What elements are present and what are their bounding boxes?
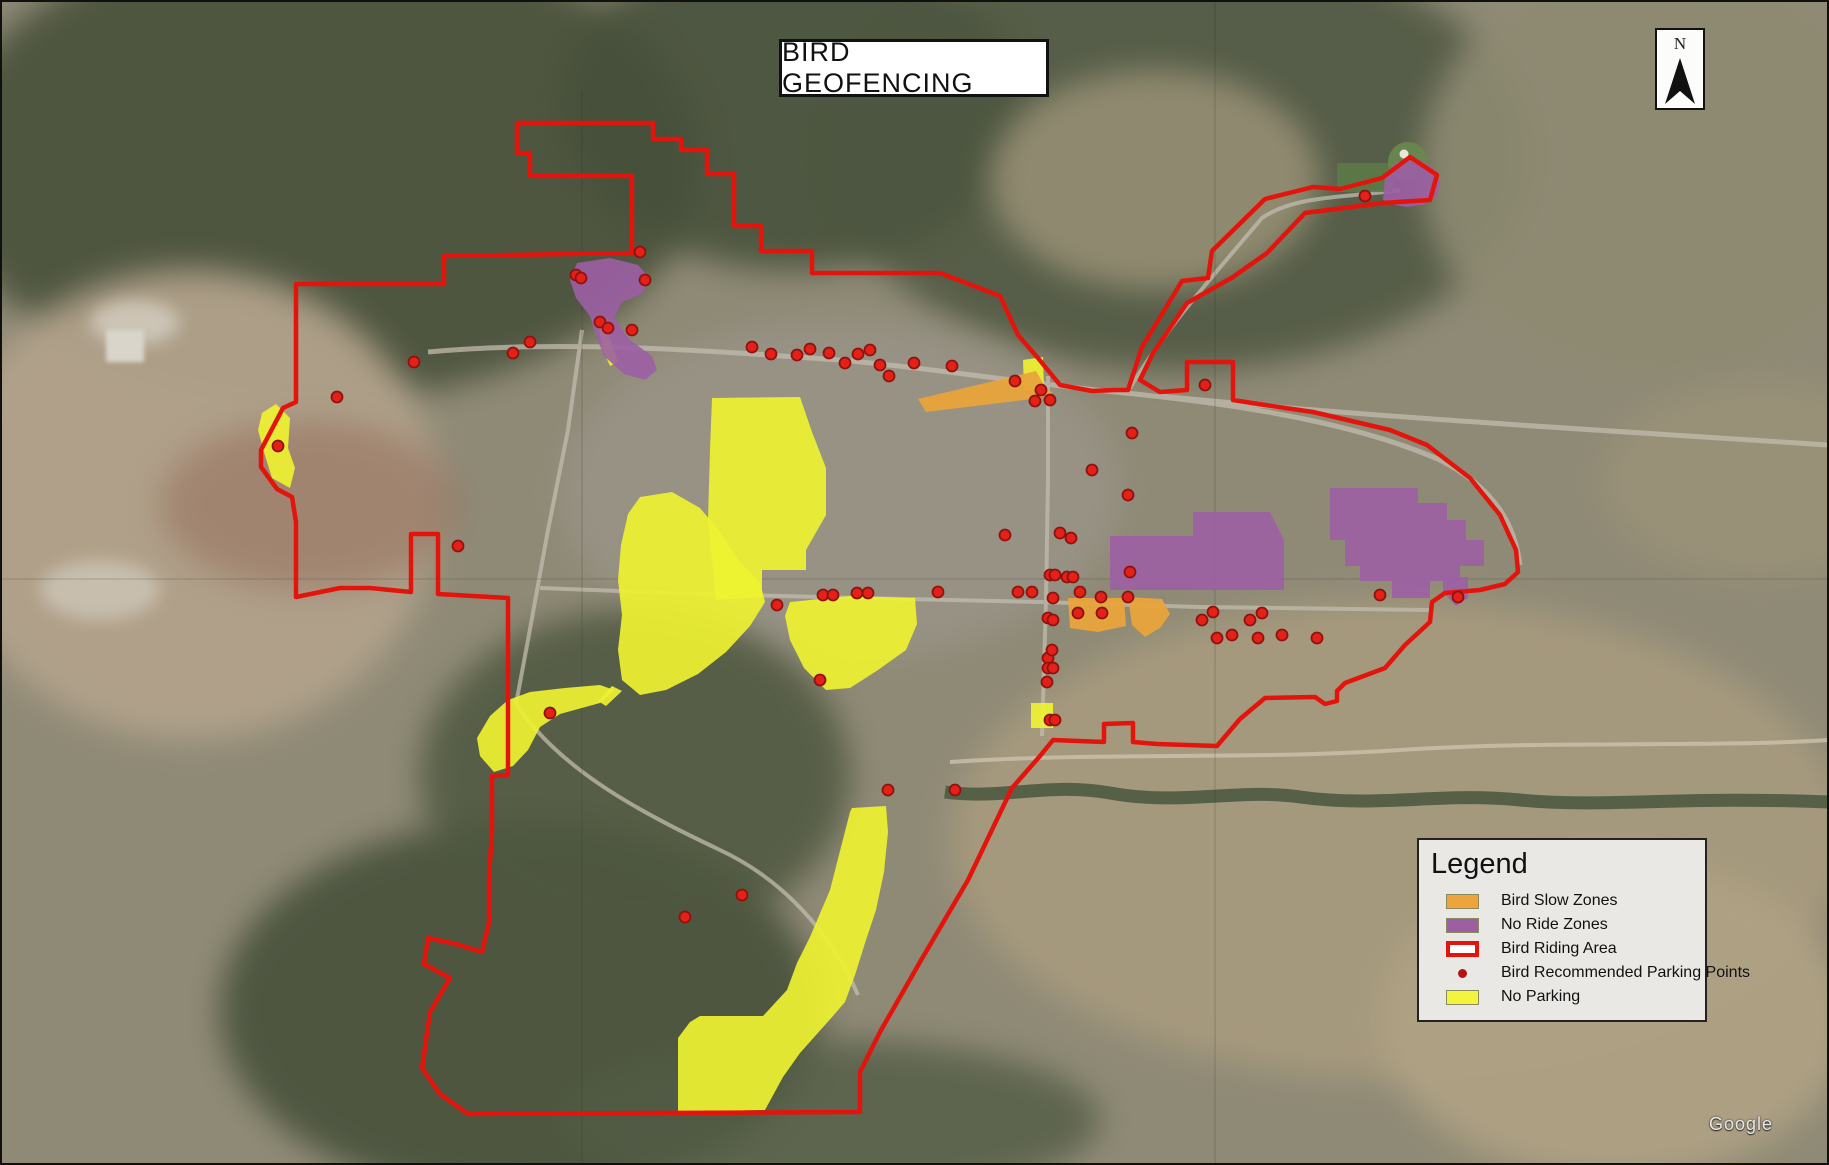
parking-point — [1227, 630, 1238, 641]
parking-point — [635, 247, 646, 258]
parking-point — [1048, 663, 1059, 674]
parking-point — [1125, 567, 1136, 578]
parking-point — [1277, 630, 1288, 641]
parking-point — [1197, 615, 1208, 626]
river — [945, 789, 1829, 803]
parking-point — [1047, 645, 1058, 656]
parking-point — [1066, 533, 1077, 544]
parking-point — [853, 349, 864, 360]
parking-point — [1453, 592, 1464, 603]
parking-point — [884, 371, 895, 382]
riding-area-swatch — [1446, 941, 1479, 957]
parking-point — [747, 342, 758, 353]
parking-point — [1068, 572, 1079, 583]
parking-point — [792, 350, 803, 361]
parking-point — [824, 348, 835, 359]
parking-point — [1073, 608, 1084, 619]
north-arrow-icon — [1657, 54, 1703, 110]
parking-point — [1360, 191, 1371, 202]
no-ride-zone — [1110, 512, 1284, 590]
parking-point — [680, 912, 691, 923]
legend-item-slow-zones: Bird Slow Zones — [1431, 889, 1705, 913]
parking-point — [1055, 528, 1066, 539]
parking-point — [766, 349, 777, 360]
parking-point — [453, 541, 464, 552]
parking-point — [1200, 380, 1211, 391]
parking-point — [805, 344, 816, 355]
parking-point — [1050, 715, 1061, 726]
parking-point — [909, 358, 920, 369]
parking-point — [1375, 590, 1386, 601]
no-parking-zone — [785, 596, 917, 690]
north-label: N — [1657, 34, 1703, 54]
parking-point — [545, 708, 556, 719]
parking-point — [1030, 396, 1041, 407]
legend-item-no-parking: No Parking — [1431, 985, 1705, 1009]
parking-point — [815, 675, 826, 686]
parking-point — [1045, 395, 1056, 406]
google-watermark: Google — [1709, 1114, 1773, 1135]
parking-point — [1036, 385, 1047, 396]
parking-point — [947, 361, 958, 372]
map-title: BIRD GEOFENCING — [782, 37, 1046, 99]
parking-point — [828, 590, 839, 601]
parking-point — [840, 358, 851, 369]
parking-point — [737, 890, 748, 901]
map-canvas: BIRD GEOFENCING N Legend Bird Slow Zones… — [0, 0, 1829, 1165]
parking-point — [1075, 587, 1086, 598]
parking-point — [576, 273, 587, 284]
legend-item-parking-points: Bird Recommended Parking Points — [1431, 961, 1705, 985]
no-ride-zone-swatch — [1446, 918, 1479, 933]
parking-point — [1010, 376, 1021, 387]
parking-point — [1212, 633, 1223, 644]
legend-item-riding-area: Bird Riding Area — [1431, 937, 1705, 961]
parking-point — [525, 337, 536, 348]
parking-point — [1208, 607, 1219, 618]
parking-point — [1123, 592, 1134, 603]
parking-point — [950, 785, 961, 796]
parking-point — [772, 600, 783, 611]
legend-item-no-ride-zones: No Ride Zones — [1431, 913, 1705, 937]
parking-point — [1245, 615, 1256, 626]
no-parking-zone — [477, 685, 614, 772]
parking-point — [1253, 633, 1264, 644]
parking-point — [1096, 592, 1107, 603]
parking-point — [1048, 593, 1059, 604]
parking-point — [640, 275, 651, 286]
parking-point — [273, 441, 284, 452]
parking-point — [865, 345, 876, 356]
parking-point — [1097, 608, 1108, 619]
parking-point — [1257, 608, 1268, 619]
parking-point — [1050, 570, 1061, 581]
parking-point — [1013, 587, 1024, 598]
parking-point — [508, 348, 519, 359]
no-parking-zone — [678, 806, 888, 1112]
bird-slow-zone — [1128, 597, 1170, 637]
parking-point — [627, 325, 638, 336]
parking-point — [883, 785, 894, 796]
no-parking-zones-layer — [258, 320, 1053, 1112]
parking-point — [1312, 633, 1323, 644]
parking-point — [1127, 428, 1138, 439]
parking-point — [332, 392, 343, 403]
parking-point — [1087, 465, 1098, 476]
parking-point — [863, 588, 874, 599]
parking-point — [1042, 677, 1053, 688]
parking-point — [1123, 490, 1134, 501]
no-parking-swatch — [1446, 990, 1479, 1005]
parking-point — [852, 588, 863, 599]
map-title-box: BIRD GEOFENCING — [779, 39, 1049, 97]
slow-zone-swatch — [1446, 894, 1479, 909]
parking-point — [875, 360, 886, 371]
legend-panel: Legend Bird Slow Zones No Ride Zones Bir… — [1417, 838, 1707, 1022]
legend-title: Legend — [1431, 848, 1705, 881]
parking-point — [1027, 587, 1038, 598]
parking-point — [603, 323, 614, 334]
parking-point — [409, 357, 420, 368]
north-arrow-box: N — [1655, 28, 1705, 110]
parking-point — [1048, 615, 1059, 626]
parking-point — [1000, 530, 1011, 541]
parking-point-swatch — [1446, 965, 1479, 981]
parking-point — [933, 587, 944, 598]
